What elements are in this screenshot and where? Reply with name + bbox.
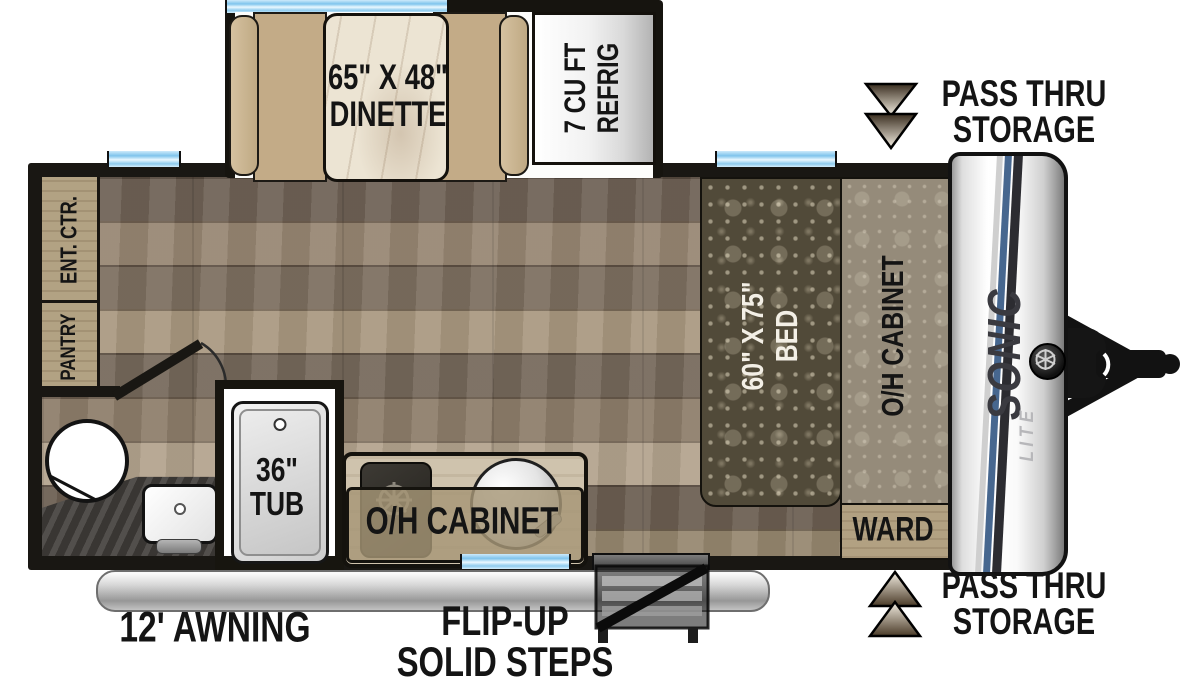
brand-logo: SONIC — [977, 288, 1031, 420]
kitchen-oh-cabinet-label: O/H CABINET — [366, 501, 559, 544]
bedroom-oh-cabinet-label: O/H CABINET — [875, 255, 911, 416]
bed-label: 60" X 75"BED — [736, 281, 804, 390]
cabinet-divider — [42, 300, 97, 303]
brand-sub-logo: LITE — [1017, 406, 1039, 461]
bathroom-faucet-icon — [156, 539, 202, 554]
bathroom-sink-icon — [142, 484, 218, 544]
floor-plan: ENT. CTR. PANTRY 36"TUB O — [0, 0, 1200, 683]
awning-label: 12' AWNING — [119, 604, 310, 653]
steps-label: FLIP-UPSOLID STEPS — [397, 600, 614, 682]
toilet-icon — [40, 416, 134, 508]
pass-thru-arrow-up-icon — [864, 570, 926, 640]
refrigerator-label: 7 CU FTREFRIG — [559, 43, 625, 134]
bench-armrest — [499, 15, 529, 176]
window — [107, 151, 181, 167]
wardrobe-label: WARD — [852, 511, 933, 550]
tub-label: 36"TUB — [250, 453, 304, 521]
pass-thru-arrow-down-icon — [860, 82, 922, 152]
bathroom-wall — [42, 386, 120, 397]
dinette-bench — [253, 12, 327, 182]
ent-ctr-label: ENT. CTR. — [56, 196, 83, 284]
window — [715, 151, 837, 167]
wheel-emblem-icon — [1029, 343, 1066, 380]
pantry-label: PANTRY — [57, 313, 81, 380]
window — [460, 554, 571, 569]
bench-armrest — [229, 15, 259, 176]
pass-thru-storage-bottom-label: PASS THRUSTORAGE — [942, 568, 1107, 640]
dinette-label: 65" X 48"DINETTE — [328, 59, 448, 133]
pass-thru-storage-top-label: PASS THRUSTORAGE — [942, 76, 1107, 148]
